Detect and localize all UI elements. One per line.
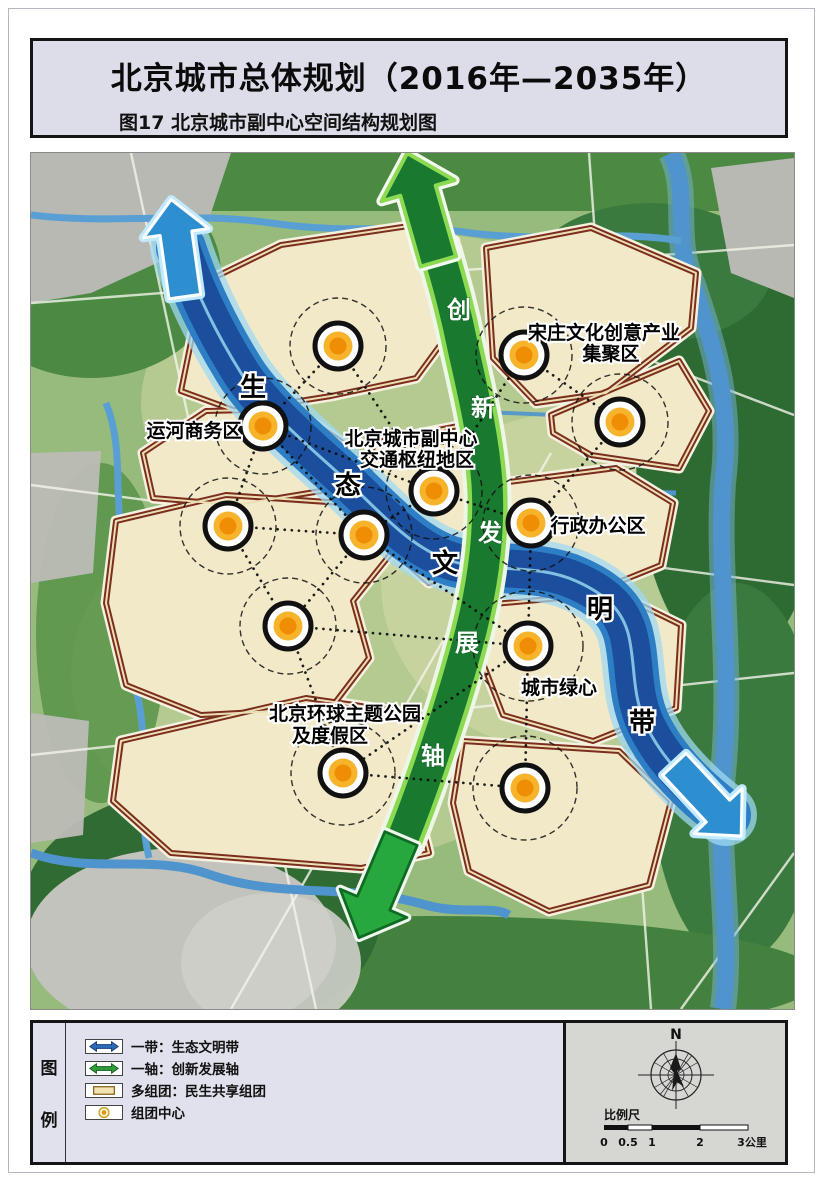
- label-hub-line2: 交通枢纽地区: [360, 448, 474, 471]
- label-hub-line1: 北京城市副中心: [344, 427, 477, 450]
- scale-tick-2: 2: [696, 1136, 704, 1149]
- belt-arrow-icon: [85, 1039, 123, 1054]
- belt-char-3: 文: [432, 548, 459, 579]
- legend-right-panel: N 比例尺 0 0.5 1 2 3公里: [563, 1023, 785, 1162]
- legend-title: 图 例: [33, 1023, 66, 1162]
- legend-item-center-label: 组团中心: [131, 1102, 185, 1122]
- scale-tick-0: 0: [600, 1136, 608, 1149]
- axis-arrow-icon: [85, 1061, 123, 1076]
- legend-item-belt: 一带：生态文明带: [85, 1035, 266, 1057]
- belt-char-4: 明: [587, 595, 613, 625]
- legend-title-char-1: 图: [41, 1054, 58, 1079]
- legend-left-panel: 图 例 一带：生态文明带 一轴：创新发展轴 多组团：民生共享组团: [33, 1023, 563, 1162]
- scale-tick-05: 0.5: [618, 1136, 638, 1149]
- map-title-panel: 北京城市总体规划（2016年—2035年） 图17 北京城市副中心空间结构规划图: [30, 38, 788, 138]
- belt-char-5: 带: [629, 708, 655, 738]
- page-title: 北京城市总体规划（2016年—2035年）: [33, 53, 785, 98]
- label-yunhe: 运河商务区: [146, 419, 241, 442]
- scale-tick-labels: 0 0.5 1 2 3公里: [600, 1136, 767, 1149]
- label-universal-line2: 及度假区: [292, 724, 368, 747]
- center-circle-icon: [85, 1105, 123, 1120]
- axis-char-5: 轴: [421, 742, 445, 770]
- axis-char-3: 发: [477, 519, 502, 547]
- planning-map: 生 态 文 明 带 创 新 发 展 轴 宋庄文化创意产业 集聚区 运河商务区 北…: [30, 152, 795, 1010]
- map-canvas: 生 态 文 明 带 创 新 发 展 轴 宋庄文化创意产业 集聚区 运河商务区 北…: [31, 153, 794, 1009]
- legend-item-axis-label: 一轴：创新发展轴: [131, 1058, 239, 1078]
- legend-item-cluster-label: 多组团：民生共享组团: [131, 1080, 266, 1100]
- belt-char-2: 态: [335, 470, 361, 501]
- legend-item-axis: 一轴：创新发展轴: [85, 1057, 266, 1079]
- axis-char-1: 创: [446, 296, 471, 324]
- page: { "header": { "title": "北京城市总体规划（2016年—2…: [0, 0, 823, 1181]
- cluster-rect-icon: [85, 1083, 123, 1098]
- legend-item-belt-label: 一带：生态文明带: [131, 1036, 239, 1056]
- compass-rose-icon: [638, 1041, 714, 1109]
- compass-and-scale: N 比例尺 0 0.5 1 2 3公里: [566, 1023, 785, 1162]
- legend-items: 一带：生态文明带 一轴：创新发展轴 多组团：民生共享组团 组团中心: [85, 1035, 266, 1123]
- label-universal-line1: 北京环球主题公园: [269, 702, 421, 725]
- legend-item-center: 组团中心: [85, 1101, 266, 1123]
- axis-char-2: 新: [471, 394, 495, 422]
- axis-char-4: 展: [455, 629, 479, 657]
- legend-panel: 图 例 一带：生态文明带 一轴：创新发展轴 多组团：民生共享组团: [30, 1020, 788, 1165]
- label-songzhuang-line2: 集聚区: [581, 342, 639, 365]
- label-songzhuang-line1: 宋庄文化创意产业: [527, 321, 680, 344]
- label-admin: 行政办公区: [549, 514, 645, 537]
- scale-bar: [604, 1125, 748, 1130]
- legend-title-char-2: 例: [41, 1106, 58, 1131]
- compass-north-label: N: [670, 1027, 682, 1043]
- scale-label: 比例尺: [604, 1107, 640, 1122]
- scale-tick-1: 1: [648, 1136, 656, 1149]
- scale-tick-3: 3公里: [737, 1136, 767, 1149]
- label-green-heart: 城市绿心: [521, 676, 597, 699]
- legend-item-cluster: 多组团：民生共享组团: [85, 1079, 266, 1101]
- page-subtitle: 图17 北京城市副中心空间结构规划图: [33, 108, 785, 135]
- belt-char-1: 生: [240, 373, 266, 403]
